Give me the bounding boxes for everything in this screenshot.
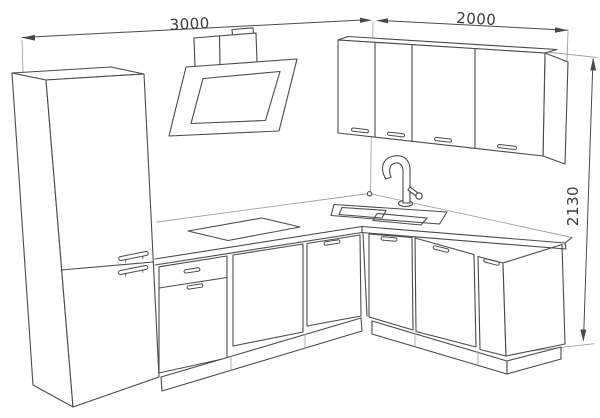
dimension-3000: 3000 [22,14,372,41]
corner-post [363,234,367,317]
cooker-hood [169,28,297,136]
kitchen-projection-drawing: 3000 2000 2130 [0,0,600,418]
counter-corner-marker [367,192,371,196]
right-run-end-panel [503,245,565,357]
right-base-door-1 [369,234,413,330]
dimension-2130: 2130 [564,58,596,342]
dimension-label-height: 2130 [564,186,582,226]
arrow-down-icon [580,330,586,342]
tap-lever-knob [416,193,422,199]
dimension-label-left-run: 3000 [169,14,210,34]
base-unit-drawer-door [159,256,227,373]
dishwasher-front-panel [233,244,303,346]
hood-angled-body [169,59,297,136]
arrow-left-icon [376,18,388,23]
base-cabinets-right-run [369,234,565,374]
tap-spout [383,156,410,203]
corner-base-door [307,235,361,326]
kitchen-drawing-canvas: 3000 2000 2130 [0,0,600,418]
dimension-2000: 2000 [376,9,568,33]
arrow-left-icon [22,35,35,41]
arrow-right-icon [360,18,372,23]
arrow-right-icon [555,27,568,33]
base-cabinets-left-run [159,234,367,392]
right-door-handle-1 [381,237,397,242]
wall-cabinet [338,37,568,165]
arrow-up-icon [590,58,596,71]
tall-fridge-cabinet [12,67,159,407]
right-base-door-3 [478,257,506,357]
dimension-label-right-run: 2000 [456,9,497,29]
hood-chimney [194,33,257,67]
right-base-door-2 [415,238,476,347]
wall-cabinet-side-face [543,53,568,164]
